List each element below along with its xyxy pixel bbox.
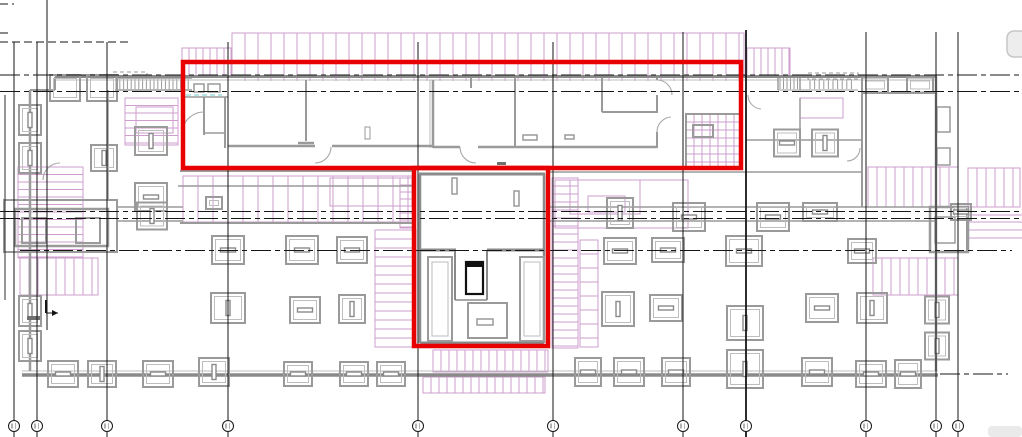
column-bar-v: [823, 136, 827, 151]
column-symbol: [91, 145, 117, 171]
column-bar-v: [870, 301, 874, 316]
grid-bubble-circle: [678, 421, 689, 432]
column-bar-h: [669, 370, 684, 374]
grid-bubble-circle: [413, 421, 424, 432]
grid-bubble: [413, 421, 424, 432]
column-bar-h: [901, 372, 916, 376]
grid-bubble: [741, 421, 752, 432]
column-bar-h: [581, 370, 596, 374]
column-bar-v: [616, 302, 620, 317]
grid-bubble-circle: [9, 421, 20, 432]
column-bar-h: [144, 195, 159, 199]
column-bar-h: [151, 372, 166, 376]
grid-bubble: [9, 421, 20, 432]
grid-bubble: [931, 421, 942, 432]
grid-bubble-circle: [741, 421, 752, 432]
column-bar-h: [291, 372, 306, 376]
column-bar-v: [102, 151, 106, 166]
grid-bubble-circle: [953, 421, 964, 432]
column-bar-h: [815, 306, 830, 310]
tiny-illegible-label: [27, 316, 40, 320]
corner-wash: [988, 426, 1022, 437]
column-bar-v: [212, 365, 216, 380]
tiny-illegible-label: [497, 162, 506, 165]
grid-bubble-circle: [102, 421, 113, 432]
grid-bubble: [861, 421, 872, 432]
grid-bubble: [223, 421, 234, 432]
column-bar-h: [298, 308, 313, 312]
column-bar-h: [56, 372, 71, 376]
ui-fragment-button[interactable]: [1007, 31, 1022, 57]
grid-bubble: [102, 421, 113, 432]
column-bar-v: [28, 151, 32, 166]
grid-bubble-circle: [861, 421, 872, 432]
floor-plan-drawing[interactable]: [0, 0, 1022, 437]
column-bar-v: [150, 209, 154, 224]
column-bar-h: [810, 370, 825, 374]
grid-bubble: [32, 421, 43, 432]
column-bar-v: [28, 339, 32, 354]
grid-bubble-circle: [32, 421, 43, 432]
column-bar-h: [384, 372, 399, 376]
column-bar-v: [28, 113, 32, 128]
cad-app-canvas[interactable]: [0, 0, 1022, 437]
column-bar-h: [622, 370, 637, 374]
column-bar-v: [350, 302, 354, 317]
column-bar-h: [659, 306, 674, 310]
column-bar-h: [347, 372, 362, 376]
column-bar-v: [100, 367, 104, 382]
grid-bubble-circle: [548, 421, 559, 432]
column-bar-h: [780, 141, 795, 145]
grid-bubble: [548, 421, 559, 432]
grid-bubble: [678, 421, 689, 432]
grid-bubble: [953, 421, 964, 432]
grid-bubble-circle: [931, 421, 942, 432]
column-bar-v: [149, 134, 153, 149]
grid-bubble-circle: [223, 421, 234, 432]
